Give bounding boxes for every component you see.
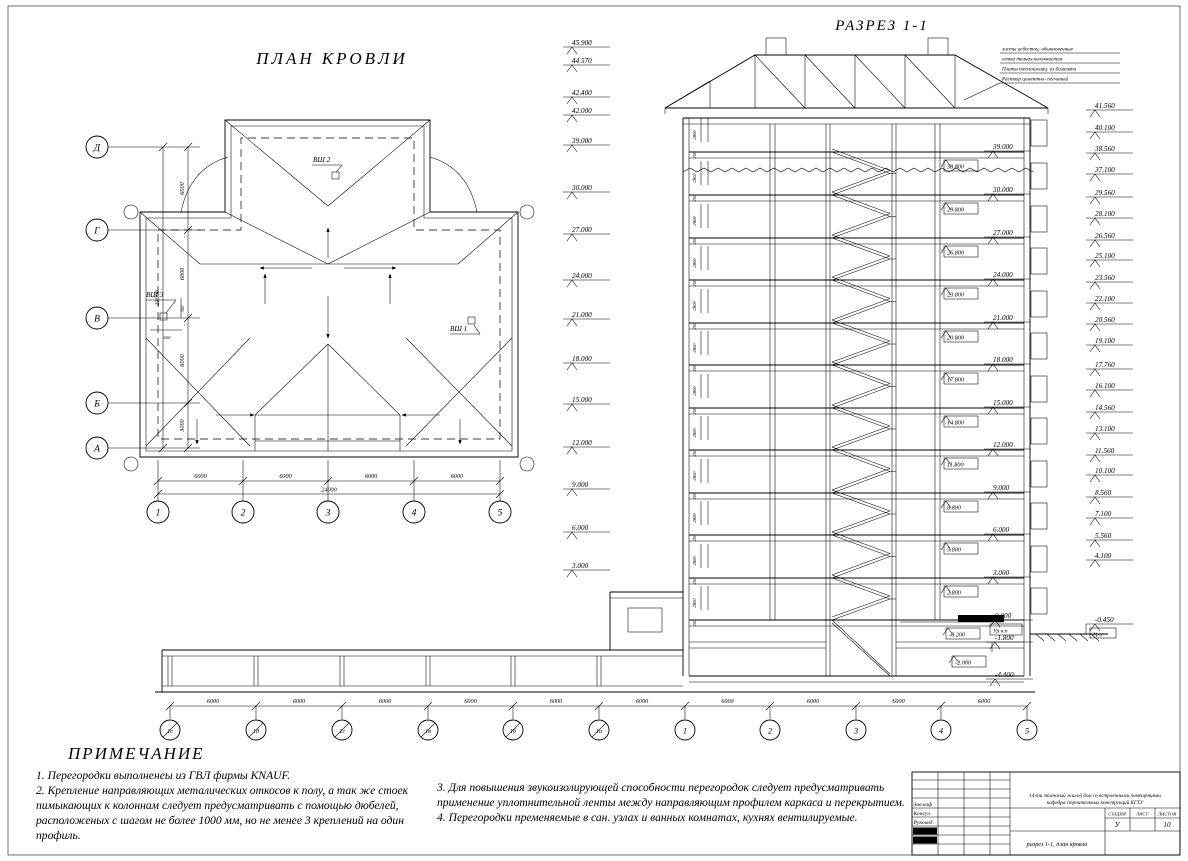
elevation-value: 20.800 bbox=[947, 335, 965, 342]
drawing-line bbox=[1090, 282, 1100, 289]
elevation-value: 18.000 bbox=[572, 355, 592, 363]
roof-note-line: сетка тканая волокнистая bbox=[1002, 57, 1063, 63]
storey-dim: 2800 bbox=[692, 386, 697, 396]
elevation-value: 12.000 bbox=[572, 439, 592, 447]
elevation-value: -4.400 bbox=[995, 671, 1014, 679]
elevation-value: 16.100 bbox=[1095, 382, 1115, 390]
storey-dim: 2800 bbox=[692, 216, 697, 226]
elevation-value: 38.800 bbox=[946, 164, 965, 171]
window bbox=[701, 374, 708, 398]
drawing-line bbox=[1090, 540, 1100, 547]
column bbox=[340, 656, 344, 686]
drawing-line bbox=[1090, 345, 1100, 352]
vent-shaft bbox=[160, 313, 167, 320]
ground-hatch bbox=[1069, 634, 1077, 641]
ground-hatch bbox=[1058, 634, 1066, 641]
elevation-value: 27.000 bbox=[993, 229, 1013, 237]
drawing-line bbox=[424, 702, 432, 719]
elevation-value: 3.000 bbox=[571, 562, 589, 570]
drawing-line bbox=[1090, 560, 1100, 567]
elevation-value: 25.100 bbox=[1095, 252, 1115, 260]
axis-label: 1в bbox=[425, 728, 431, 735]
elevation-value: 9.000 bbox=[993, 484, 1010, 492]
elevation-value: 40.100 bbox=[1095, 124, 1115, 132]
slab-dim: 200 bbox=[692, 364, 697, 372]
dim-label: 6000 bbox=[207, 698, 220, 705]
drawing-line bbox=[567, 65, 577, 72]
storey-dim: 2800 bbox=[692, 343, 697, 353]
elevation-value: -2.000 bbox=[955, 660, 972, 667]
storey-dim: 2800 bbox=[692, 598, 697, 608]
window bbox=[701, 544, 708, 568]
elevation-value: 6.000 bbox=[572, 524, 589, 532]
roof-vent-stack bbox=[928, 38, 948, 55]
slab-dim: 200 bbox=[692, 279, 697, 287]
elevation-value: 12.000 bbox=[993, 441, 1013, 449]
elevation-value: 24.000 bbox=[572, 272, 592, 280]
roof-vent-stack bbox=[766, 38, 786, 55]
slab-dim: 200 bbox=[692, 237, 697, 245]
redacted-name bbox=[913, 837, 937, 844]
window bbox=[701, 416, 708, 440]
stage-header: СТАДИЯ bbox=[1108, 812, 1126, 817]
balcony bbox=[1031, 163, 1047, 189]
drawing-canvas: ПЛАН КРОВЛИ РАЗРЕЗ 1-1 ВШ 2 ВШ 3 bbox=[0, 0, 1188, 861]
drawing-line bbox=[567, 489, 577, 496]
elevation-value: -0.200 bbox=[949, 632, 966, 639]
role-label: Консул. bbox=[913, 811, 932, 817]
drawing-line bbox=[567, 192, 577, 199]
title-block: Зав.каф Консул. Руковод. 14-ти этажный ж… bbox=[912, 772, 1180, 855]
elevation-value: 44.570 bbox=[572, 57, 592, 65]
dim-label: 6000 bbox=[550, 698, 563, 705]
dim-label: 6000 bbox=[464, 698, 477, 705]
drawing-line bbox=[595, 702, 603, 719]
balcony bbox=[1031, 461, 1047, 487]
elevation-value: 21.000 bbox=[993, 314, 1013, 322]
project-name-line2: кафедра строительных конструкций КГТУ bbox=[1047, 799, 1145, 806]
stair-flight bbox=[832, 490, 896, 535]
storey-dim: 2800 bbox=[692, 471, 697, 481]
window bbox=[701, 204, 708, 228]
column bbox=[254, 656, 258, 686]
dim-label: 6000 bbox=[179, 181, 186, 194]
dim-label: 6000 bbox=[892, 698, 905, 705]
drawing-sheet: ПЛАН КРОВЛИ РАЗРЕЗ 1-1 ВШ 2 ВШ 3 bbox=[0, 0, 1188, 861]
window bbox=[701, 586, 708, 610]
elevation-value: 4.100 bbox=[1095, 552, 1112, 560]
drawing-line bbox=[1090, 624, 1100, 631]
roof-note-line: листы асбестоц. обыкновенные bbox=[1001, 46, 1074, 53]
column bbox=[597, 656, 601, 686]
elevation-value: 11.800 bbox=[947, 462, 964, 469]
notes-heading: ПРИМЕЧАНИЕ bbox=[68, 744, 205, 764]
stair-flight bbox=[832, 235, 896, 280]
elevation-value: 21.000 bbox=[572, 311, 592, 319]
plan-title: ПЛАН КРОВЛИ bbox=[255, 49, 408, 68]
storey-dim: 2800 bbox=[692, 130, 697, 140]
axis-label: 4 bbox=[939, 726, 944, 736]
elevation-value: 15.000 bbox=[993, 399, 1013, 407]
drawing-line bbox=[1090, 218, 1100, 225]
notes-left-column: 1. Перегородки выполненеы из ГВЛ фирмы K… bbox=[36, 768, 438, 843]
elevation-value: 7.100 bbox=[1095, 510, 1112, 518]
balcony bbox=[1031, 376, 1047, 402]
elevation-value: 18.000 bbox=[993, 356, 1013, 364]
elevation-value: 30.000 bbox=[992, 186, 1013, 194]
axis-label: 1 bbox=[156, 509, 161, 519]
elevation-value: 11.560 bbox=[1095, 447, 1115, 455]
axis-label: 3 bbox=[325, 509, 331, 519]
generated-annotations: ДГВБА60006000600030002100012345600060006… bbox=[86, 39, 1133, 740]
dim-label: 6000 bbox=[194, 473, 207, 480]
dim-total: 24000 bbox=[321, 487, 337, 494]
elevation-value: 42.400 bbox=[572, 89, 592, 97]
elevation-value: 39.000 bbox=[992, 143, 1013, 151]
drawing-line bbox=[1090, 497, 1100, 504]
elevation-value: 30.000 bbox=[571, 184, 592, 192]
slab-dim: 200 bbox=[692, 619, 697, 627]
axis-label: 5 bbox=[1025, 726, 1029, 736]
drawing-line bbox=[1090, 132, 1100, 139]
project-name-line1: 14-ти этажный жилой дом со встроенными п… bbox=[1029, 792, 1161, 799]
axis-label: 1д bbox=[253, 728, 259, 735]
elevation-value: 19.100 bbox=[1095, 337, 1115, 345]
elevation-value: -1.800 bbox=[995, 634, 1014, 642]
balcony bbox=[1031, 206, 1047, 232]
slab-dim: 200 bbox=[692, 151, 697, 159]
axis-label: Г bbox=[93, 227, 100, 237]
storey-dim: 2800 bbox=[692, 258, 697, 268]
drawing-line bbox=[567, 532, 577, 539]
elevation-value: 5.800 bbox=[947, 547, 962, 554]
elevation-value: 27.000 bbox=[572, 226, 592, 234]
balcony bbox=[1031, 291, 1047, 317]
drawing-line bbox=[567, 145, 577, 152]
axis-label: 5 bbox=[498, 509, 503, 519]
elevation-value: 28.100 bbox=[1095, 210, 1115, 218]
drawing-line bbox=[567, 47, 577, 54]
sheet-header: ЛИСТ bbox=[1135, 812, 1148, 817]
notes-right-column: 3. Для повышения звукоизолирующей способ… bbox=[437, 780, 915, 825]
drawing-line bbox=[1090, 240, 1100, 247]
elevation-value: 17.800 bbox=[947, 377, 965, 384]
elevation-value: 2.800 bbox=[947, 590, 962, 597]
drawing-line bbox=[681, 702, 689, 719]
drawing-line bbox=[852, 702, 860, 719]
drawing-line bbox=[1090, 518, 1100, 525]
balcony bbox=[1031, 248, 1047, 274]
elevation-value: 24.000 bbox=[993, 271, 1013, 279]
stage-value: У bbox=[1115, 821, 1121, 829]
drawing-line bbox=[567, 404, 577, 411]
elevation-value: 22.100 bbox=[1095, 295, 1115, 303]
window bbox=[701, 289, 708, 313]
elevation-value: 23.560 bbox=[1095, 274, 1115, 282]
drawing-line bbox=[1090, 412, 1100, 419]
dim-label: 6000 bbox=[365, 473, 378, 480]
drawing-line bbox=[567, 234, 577, 241]
drawing-line bbox=[1090, 433, 1100, 440]
elevation-value: 10.100 bbox=[1095, 467, 1115, 475]
slab-dim: 200 bbox=[692, 194, 697, 202]
dim-label: 6000 bbox=[179, 267, 186, 280]
drain-funnel bbox=[520, 205, 534, 219]
drawing-line bbox=[567, 319, 577, 326]
column bbox=[426, 656, 430, 686]
axis-label: Б bbox=[93, 400, 100, 410]
window bbox=[701, 161, 708, 185]
axis-label: 1г bbox=[339, 728, 345, 735]
stair-flight bbox=[832, 620, 890, 676]
elevation-value: 13.100 bbox=[1095, 425, 1115, 433]
slab-dim: 200 bbox=[692, 407, 697, 415]
sheets-header: ЛИСТОВ bbox=[1157, 812, 1176, 817]
axis-label: 1а bbox=[596, 728, 602, 735]
drawing-line bbox=[1090, 303, 1100, 310]
elevation-value: 26.560 bbox=[1095, 232, 1115, 240]
stair-flight bbox=[832, 532, 896, 578]
window bbox=[701, 459, 708, 483]
dim-label: 6000 bbox=[279, 473, 292, 480]
balcony bbox=[1031, 503, 1047, 529]
drawing-line bbox=[567, 570, 577, 577]
stair-flight bbox=[832, 320, 896, 365]
roof-note-line: Раствор цементно- песчаный bbox=[1001, 76, 1069, 83]
vent-shaft-label: ВШ 1 bbox=[450, 325, 467, 333]
storey-dim: 2800 bbox=[692, 556, 697, 566]
drawing-line bbox=[1090, 197, 1100, 204]
elevation-value: 8.800 bbox=[947, 505, 962, 512]
window bbox=[701, 246, 708, 270]
stair-flight bbox=[832, 447, 896, 493]
dim-label: 6000 bbox=[451, 473, 464, 480]
axis-label: 4 bbox=[412, 509, 417, 519]
drawing-line bbox=[1090, 475, 1100, 482]
stair-flight bbox=[832, 192, 896, 238]
elevation-value: 39.000 bbox=[571, 137, 592, 145]
storey-dim: 2800 bbox=[692, 301, 697, 311]
elevation-value: 6.000 bbox=[993, 526, 1010, 534]
ground-hatch bbox=[1036, 634, 1044, 641]
elevation-value: 41.560 bbox=[1095, 102, 1115, 110]
drawing-line bbox=[1090, 390, 1100, 397]
axis-label: Д bbox=[93, 144, 101, 154]
balcony bbox=[1031, 418, 1047, 444]
drain-funnel bbox=[520, 457, 534, 471]
elevation-value: 23.800 bbox=[947, 292, 965, 299]
drawing-line bbox=[166, 702, 174, 719]
slab-dim: 200 bbox=[692, 534, 697, 542]
elevation-value: -0.450 bbox=[1095, 616, 1114, 624]
elevation-value: 9.000 bbox=[572, 481, 589, 489]
window bbox=[701, 501, 708, 525]
elevation-value: 29.560 bbox=[1095, 189, 1115, 197]
dim-label: 6000 bbox=[721, 698, 734, 705]
elevation-value: 26.800 bbox=[947, 250, 965, 257]
drain-funnel bbox=[124, 457, 138, 471]
leader-line bbox=[964, 83, 1000, 100]
redacted-name bbox=[913, 828, 937, 835]
axis-label: А bbox=[93, 445, 100, 455]
axis-label: 1е bbox=[167, 728, 173, 735]
balcony bbox=[1031, 546, 1047, 572]
drawing-line bbox=[937, 702, 945, 719]
dim-label: 6000 bbox=[293, 698, 306, 705]
slab-dim: 200 bbox=[692, 449, 697, 457]
elevation-value: 17.760 bbox=[1095, 361, 1115, 369]
drain-funnel bbox=[124, 205, 138, 219]
ground-hatch bbox=[1080, 634, 1088, 641]
roof-note-line: Плиты теплоизоляц. из базальта bbox=[1001, 66, 1077, 73]
roof-plan: ВШ 2 ВШ 3 300 600 ВШ 1 bbox=[124, 120, 534, 471]
elevation-value: 3.000 bbox=[992, 569, 1010, 577]
ground-hatch bbox=[1047, 634, 1055, 641]
stair-flight bbox=[832, 362, 896, 408]
drawing-line bbox=[1090, 324, 1100, 331]
doc-title: разрез 1-1, план кровли bbox=[1026, 841, 1088, 848]
drawing-line bbox=[1090, 260, 1100, 267]
slab-dim: 200 bbox=[692, 492, 697, 500]
elevation-value: 15.000 bbox=[572, 396, 592, 404]
drawing-line bbox=[1090, 174, 1100, 181]
elevation-value: 20.560 bbox=[1095, 316, 1115, 324]
balcony bbox=[1031, 588, 1047, 614]
drawing-line bbox=[338, 702, 346, 719]
vent-shaft bbox=[468, 317, 475, 324]
balcony bbox=[1031, 333, 1047, 359]
stair-flight bbox=[832, 405, 896, 450]
drawing-line bbox=[1090, 153, 1100, 160]
section-title: РАЗРЕЗ 1-1 bbox=[834, 18, 929, 34]
drawing-line bbox=[1090, 110, 1100, 117]
drawing-line bbox=[567, 447, 577, 454]
slab-dim: 200 bbox=[692, 322, 697, 330]
elevation-value: 42.000 bbox=[572, 107, 592, 115]
drawing-line bbox=[567, 280, 577, 287]
elevation-value: 29.800 bbox=[947, 207, 965, 214]
column bbox=[168, 656, 172, 686]
elevation-value: 0.000 bbox=[995, 612, 1012, 620]
dim-label: 6000 bbox=[379, 698, 392, 705]
axis-label: В bbox=[94, 315, 100, 325]
dim-total: 21000 bbox=[154, 289, 161, 305]
drawing-line bbox=[252, 702, 260, 719]
stair-flight bbox=[832, 149, 896, 195]
vent-shaft bbox=[332, 172, 339, 179]
drawing-line bbox=[990, 679, 1000, 686]
axis-label: 3 bbox=[853, 726, 858, 736]
drawing-line bbox=[1090, 369, 1100, 376]
shaft-dim: 600 bbox=[164, 335, 172, 340]
axis-label: 1б bbox=[510, 728, 517, 735]
storey-dim: 2800 bbox=[692, 173, 697, 183]
drawing-line bbox=[509, 702, 517, 719]
vent-shaft-label: ВШ 2 bbox=[313, 156, 331, 164]
drawing-line bbox=[567, 363, 577, 370]
drawing-line bbox=[567, 97, 577, 104]
stair-flight bbox=[832, 277, 896, 323]
role-label: Зав.каф bbox=[914, 801, 933, 808]
stair-flight bbox=[832, 575, 896, 620]
elevation-value: 5.560 bbox=[1095, 532, 1112, 540]
dim-label: 3000 bbox=[179, 418, 186, 432]
annex-opening bbox=[628, 608, 662, 632]
drawing-line bbox=[567, 115, 577, 122]
column bbox=[511, 656, 515, 686]
drawing-line bbox=[1090, 455, 1100, 462]
elevation-value: 14.800 bbox=[947, 420, 965, 427]
window bbox=[701, 118, 708, 142]
elevation-value: 45.900 bbox=[572, 39, 592, 47]
elevation-value: 8.560 bbox=[1095, 489, 1112, 497]
dim-label: 6000 bbox=[978, 698, 991, 705]
drawing-line bbox=[1023, 702, 1031, 719]
axis-label: 2 bbox=[768, 726, 773, 736]
dim-label: 6000 bbox=[807, 698, 820, 705]
elevation-value: 38.560 bbox=[1094, 145, 1115, 153]
storey-dim: 2800 bbox=[692, 513, 697, 523]
slab-dim: 200 bbox=[692, 577, 697, 585]
break-line bbox=[683, 168, 1033, 172]
balcony bbox=[1031, 120, 1047, 146]
dim-label: 6000 bbox=[179, 353, 186, 366]
dim-label: 6000 bbox=[636, 698, 649, 705]
sheets-value: 10 bbox=[1163, 821, 1171, 829]
elevation-value: 14.560 bbox=[1095, 404, 1115, 412]
axis-label: 2 bbox=[241, 509, 246, 519]
role-label: Руковод. bbox=[913, 819, 934, 826]
axis-label: 1 bbox=[683, 726, 687, 736]
drawing-line bbox=[766, 702, 774, 719]
storey-dim: 2800 bbox=[692, 428, 697, 438]
window bbox=[701, 331, 708, 355]
elevation-value: 37.100 bbox=[1094, 166, 1115, 174]
